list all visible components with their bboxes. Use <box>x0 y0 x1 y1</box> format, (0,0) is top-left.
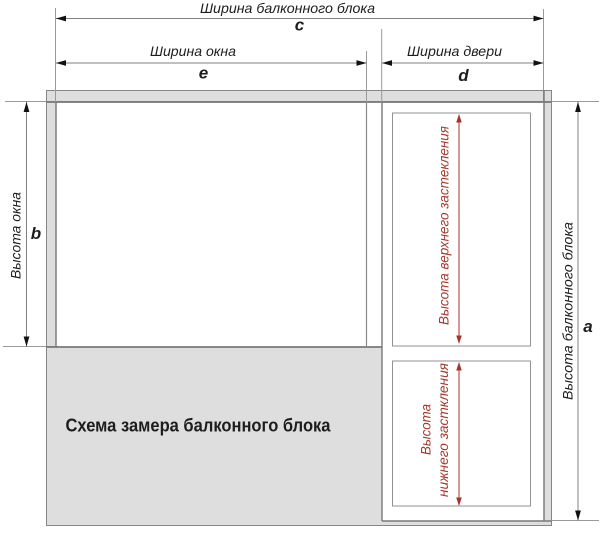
svg-text:Ширина окна: Ширина окна <box>150 43 236 59</box>
svg-text:a: a <box>583 317 592 336</box>
svg-text:c: c <box>295 16 305 35</box>
svg-text:Высота верхнего застекления: Высота верхнего застекления <box>436 126 452 325</box>
svg-text:Высота балконного блока: Высота балконного блока <box>560 222 576 400</box>
svg-text:Высота окна: Высота окна <box>8 192 24 279</box>
svg-text:Ширина балконного блока: Ширина балконного блока <box>200 0 375 16</box>
svg-text:e: e <box>199 64 208 83</box>
svg-text:d: d <box>458 66 469 85</box>
svg-text:Ширина двери: Ширина двери <box>407 43 502 59</box>
svg-text:Схема замера балконного блока: Схема замера балконного блока <box>66 416 332 436</box>
svg-text:b: b <box>31 224 41 243</box>
svg-text:Высота: Высота <box>418 404 434 455</box>
svg-text:нижнего засткления: нижнего засткления <box>435 363 451 497</box>
